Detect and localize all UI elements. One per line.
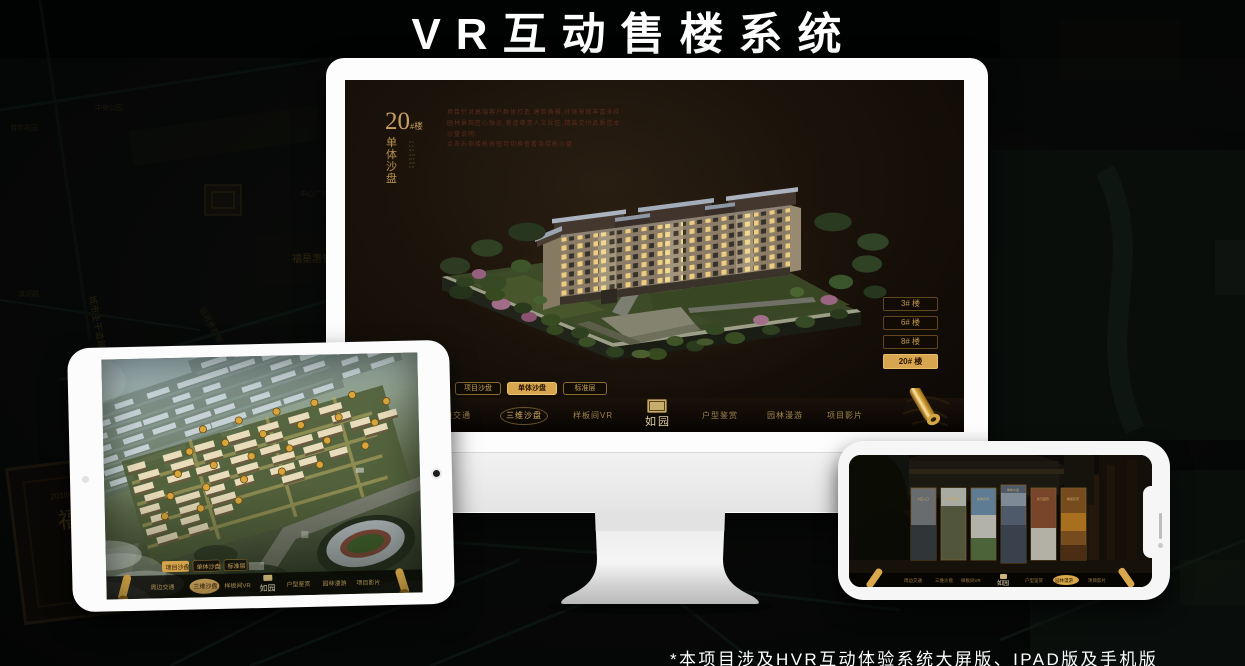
svg-text:秋日园景: 秋日园景 bbox=[1037, 496, 1049, 501]
svg-text:如园: 如园 bbox=[997, 579, 1009, 587]
svg-text:城市花园: 城市花园 bbox=[10, 123, 38, 132]
svg-text:小区入口: 小区入口 bbox=[917, 496, 929, 501]
svg-text:中心广场: 中心广场 bbox=[300, 189, 328, 198]
svg-text:滨河路: 滨河路 bbox=[18, 289, 39, 298]
svg-text:周边交通: 周边交通 bbox=[904, 577, 922, 584]
svg-text:单体沙盘: 单体沙盘 bbox=[1007, 487, 1019, 492]
svg-text:园林漫游: 园林漫游 bbox=[1055, 577, 1073, 584]
svg-text:楼体实景: 楼体实景 bbox=[977, 496, 989, 501]
svg-text:户型鉴赏: 户型鉴赏 bbox=[1025, 577, 1043, 584]
svg-text:园林实景: 园林实景 bbox=[947, 496, 959, 501]
svg-text:样板间VR: 样板间VR bbox=[961, 577, 982, 584]
svg-text:中央公园: 中央公园 bbox=[95, 103, 123, 112]
svg-text:项目影片: 项目影片 bbox=[1088, 577, 1106, 584]
svg-text:精装实景: 精装实景 bbox=[1067, 496, 1079, 501]
svg-text:三维沙盘: 三维沙盘 bbox=[935, 577, 953, 584]
